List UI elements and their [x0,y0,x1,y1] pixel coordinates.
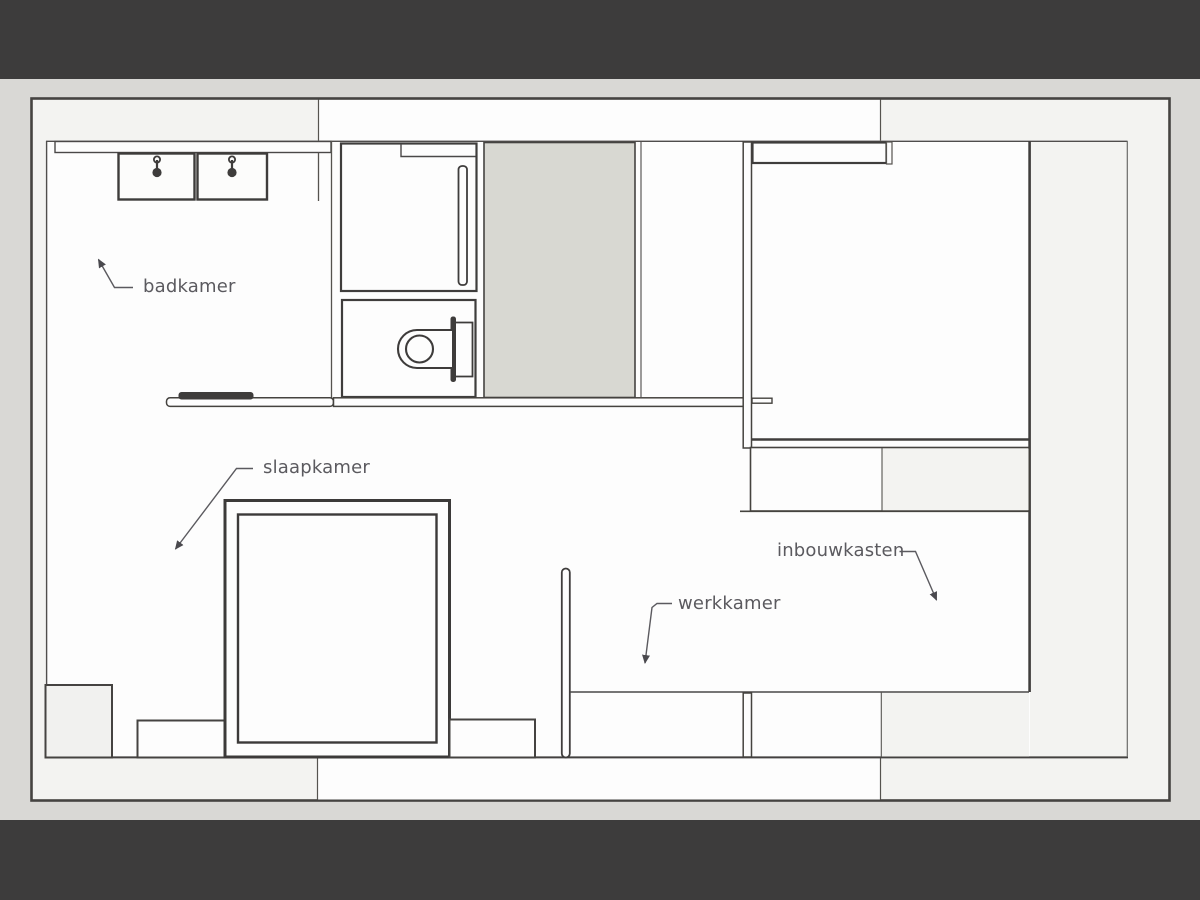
bottom-wall-recess [318,759,880,800]
shower-toilet-column [332,141,477,406]
shower-cabin [341,144,477,292]
wall-stub [752,398,772,403]
service-shaft [484,142,641,398]
wardrobe-strip [753,143,887,164]
nightstand-left [138,721,225,758]
label-inbouwkasten: inbouwkasten [777,542,904,560]
floor-plan-drawing [0,0,1200,900]
bed-mattress [238,515,437,743]
slide-stage: badkamer slaapkamer werkkamer inbouwkast… [0,0,1200,900]
interior-wall-vertical [743,142,751,448]
label-slaapkamer: slaapkamer [263,459,370,477]
partition-wall [562,569,570,758]
label-badkamer: badkamer [143,278,236,296]
vanity-counter [55,142,331,153]
corner-cabinet [46,685,113,758]
toilet-room [342,300,476,397]
top-wall-recess [319,100,880,140]
nightstand-right [450,720,536,758]
shower-glass-panel [459,166,468,285]
closet-band [740,448,1029,512]
radiator-icon [179,392,254,400]
label-werkkamer: werkkamer [678,595,781,613]
